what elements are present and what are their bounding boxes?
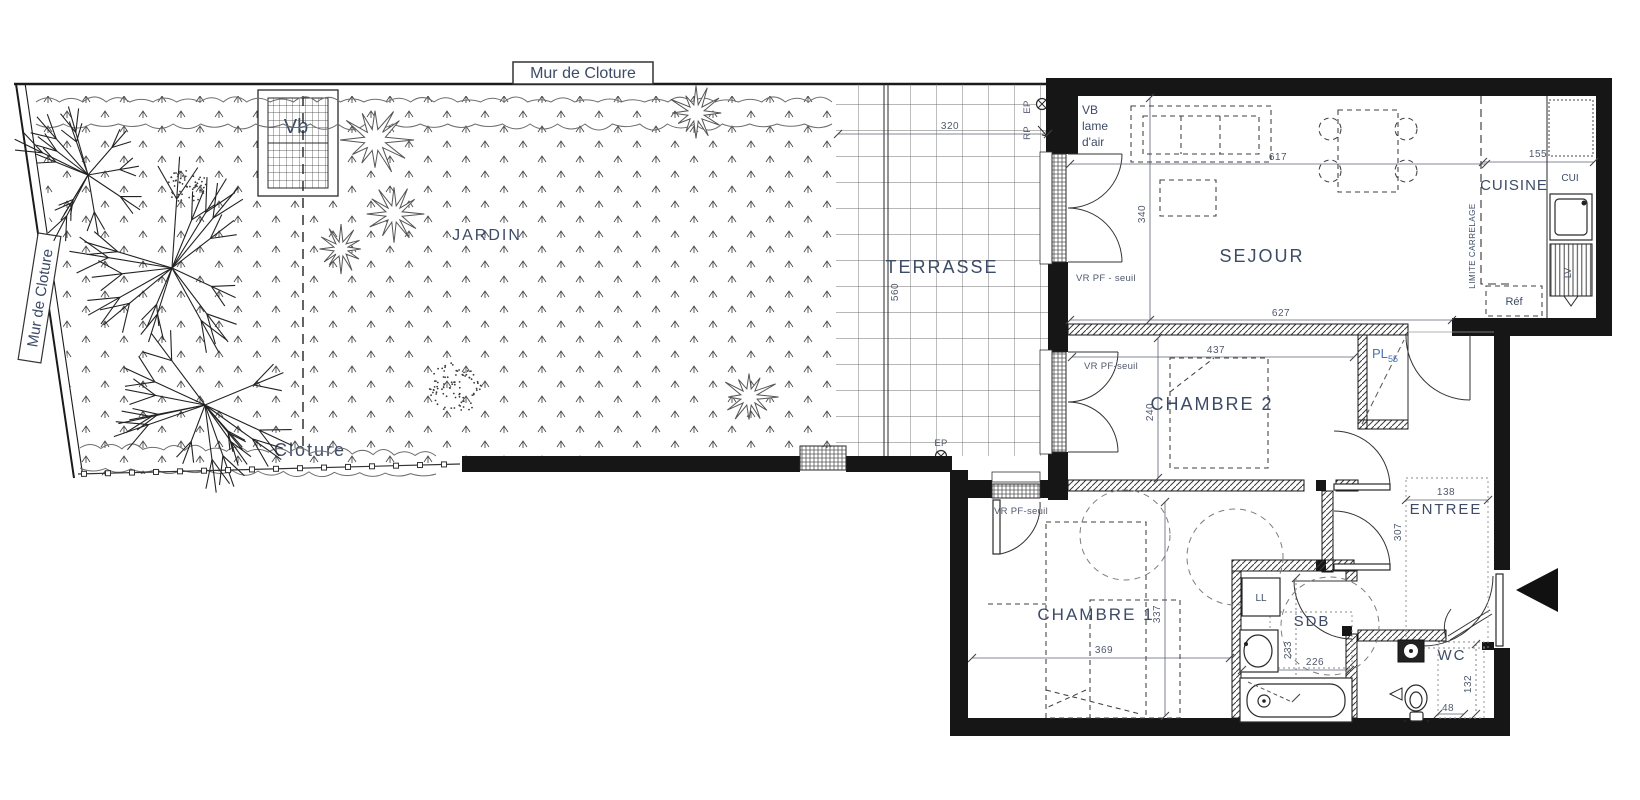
label-vr-pf-seuil-chambre1: VR PF-seuil	[994, 506, 1048, 517]
dim-chambre1-369: 369	[1095, 645, 1113, 656]
room-label-chambre2: CHAMBRE 2	[1150, 394, 1273, 414]
label-ep-top: EP	[1022, 100, 1033, 113]
label-vb-lame-1: VB	[1082, 103, 1098, 117]
room-cuisine: LIMITE CARRELAGE CUISINE 155 CUI LV Réf	[1468, 96, 1594, 318]
coffee-table	[1160, 180, 1216, 216]
room-label-wc: WC	[1438, 647, 1467, 664]
door-wc	[1444, 609, 1492, 640]
window-chambre1	[992, 484, 1040, 498]
clearance-circle	[1080, 490, 1170, 580]
label-lv: LV	[1563, 268, 1573, 278]
washing-machine: LL	[1242, 578, 1280, 616]
window-garden-wall	[800, 446, 846, 470]
label-cui: CUI	[1561, 173, 1578, 184]
wall-top-label-box: Mur de Cloture	[513, 62, 653, 84]
dim-sdb-233: 233	[1283, 641, 1294, 659]
floor-plan: Mur de Cloture Mur de Cloture Vb JARDIN …	[0, 0, 1640, 800]
closet-pl: PL 55	[1362, 340, 1404, 424]
dim-sdb-226: 226	[1306, 657, 1324, 668]
label-ll: LL	[1255, 593, 1267, 604]
room-sejour: SEJOUR VB lame d'air VR PF - seuil 617 6…	[1070, 98, 1486, 320]
kitchen-counter	[1549, 100, 1593, 156]
dining-table	[1319, 110, 1417, 192]
window-sill	[1040, 350, 1052, 454]
label-ep-bottom: EP	[934, 438, 947, 449]
door-swing-marker	[1390, 688, 1402, 700]
window-sill	[1040, 152, 1052, 264]
room-label-sejour: SEJOUR	[1219, 246, 1304, 266]
dim-sejour-627: 627	[1272, 308, 1290, 319]
planter-vb: Vb	[258, 90, 338, 196]
room-chambre2: CHAMBRE 2 437 240 VR PF-seuil PL 55	[1072, 338, 1404, 478]
french-door-sejour	[1068, 154, 1122, 262]
label-vr-pf-seuil-sejour: VR PF - seuil	[1076, 273, 1136, 284]
dim-chambre1-337: 337	[1152, 605, 1163, 623]
toilet-icon	[1404, 685, 1430, 722]
dishwasher-icon: LV	[1550, 244, 1592, 306]
dim-cuisine-155: 155	[1529, 149, 1547, 160]
dim-wc-48: 48	[1442, 703, 1454, 714]
kitchen-sink-icon	[1550, 194, 1592, 240]
window-sejour	[1052, 154, 1066, 262]
dim-sejour-617: 617	[1269, 152, 1287, 163]
bathtub-icon	[1240, 678, 1352, 722]
dim-chambre2-240: 240	[1145, 403, 1156, 421]
label-jardin: JARDIN	[452, 227, 522, 244]
sofa	[1131, 106, 1271, 162]
garden-grass-pattern	[34, 96, 836, 476]
label-ref: Réf	[1505, 296, 1523, 308]
room-label-entree: ENTREE	[1410, 501, 1483, 518]
room-entree: ENTREE 138 307	[1393, 478, 1488, 648]
label-mur-de-cloture-top: Mur de Cloture	[530, 65, 636, 82]
label-pl-55: 55	[1388, 354, 1398, 364]
dim-chambre2-437: 437	[1207, 345, 1225, 356]
interior-walls	[1068, 324, 1494, 718]
room-label-sdb: SDB	[1294, 613, 1331, 630]
room-label-chambre1: CHAMBRE 1	[1037, 605, 1154, 624]
dim-entree-307: 307	[1393, 523, 1404, 541]
label-vb-lame-2: lame	[1082, 119, 1108, 133]
label-pl: PL	[1372, 346, 1388, 361]
hand-basin-icon	[1398, 640, 1424, 662]
entrance-arrow-icon	[1516, 568, 1558, 612]
dim-wc-132: 132	[1463, 675, 1474, 693]
label-vb-lame-3: d'air	[1082, 135, 1104, 149]
dim-terrasse-320: 320	[941, 121, 959, 132]
label-limite-carrelage: LIMITE CARRELAGE	[1468, 203, 1477, 288]
dim-sejour-340: 340	[1137, 205, 1148, 223]
label-rp-top: RP	[1022, 126, 1033, 140]
label-vr-pf-seuil-chambre2: VR PF-seuil	[1084, 361, 1138, 372]
window-chambre2	[1052, 352, 1066, 452]
room-label-cuisine: CUISINE	[1480, 177, 1548, 194]
window-sill	[992, 472, 1040, 482]
dim-entree-138: 138	[1437, 487, 1455, 498]
room-wc: WC 132 48	[1390, 640, 1484, 722]
dim-terrasse-560: 560	[890, 283, 901, 301]
terrace-area: 320 560 TERRASSE EP RP EP	[836, 84, 1048, 462]
door-sejour-entree	[1406, 335, 1470, 400]
room-sdb: SDB 233 226 LL	[1240, 577, 1379, 722]
label-terrasse: TERRASSE	[885, 257, 998, 277]
